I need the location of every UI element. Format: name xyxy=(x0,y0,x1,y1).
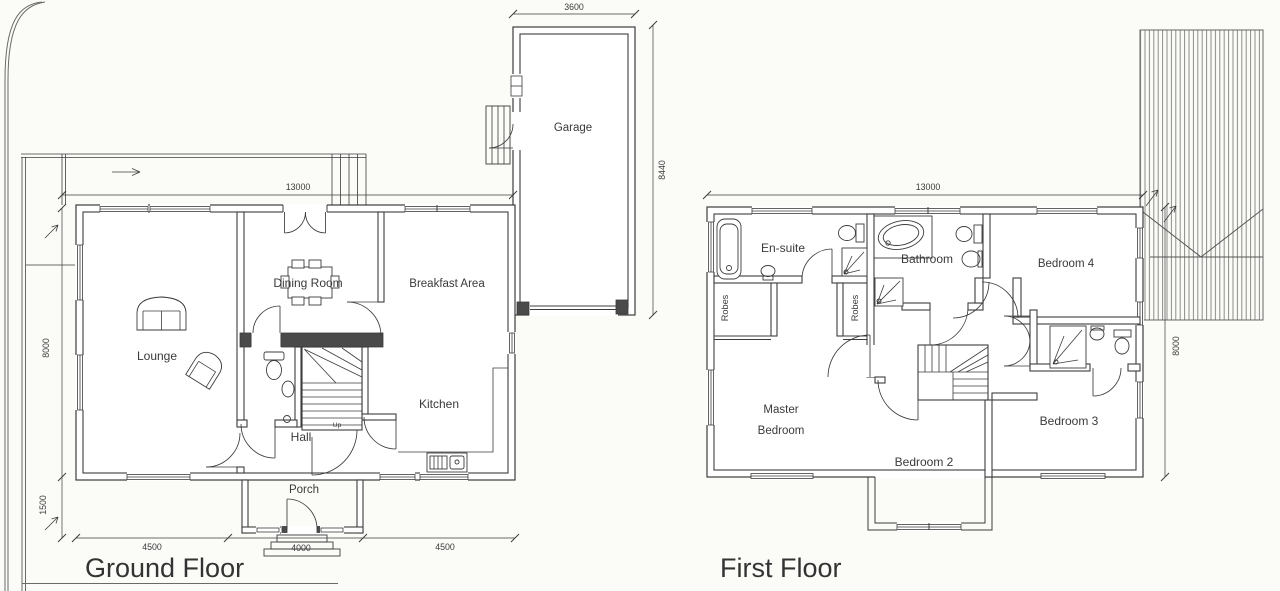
hall-label: Hall xyxy=(291,430,312,444)
ensuite-toilet-fixture xyxy=(839,224,865,242)
patio-strip xyxy=(21,154,366,205)
ground-floor-title: Ground Floor xyxy=(85,553,244,583)
garage-side-door xyxy=(489,124,513,148)
bedroom-4-label: Bedroom 4 xyxy=(1038,258,1095,270)
bathroom-label: Bathroom xyxy=(901,252,953,266)
dining-room-label: Dining Room xyxy=(273,276,342,290)
lounge-label: Lounge xyxy=(137,349,177,363)
dim-front-left: 4500 xyxy=(142,542,162,552)
ensuite-label: En-suite xyxy=(761,241,805,255)
garage-roof-hatch xyxy=(1140,30,1263,320)
dim-rear-offset: 1500 xyxy=(38,495,48,515)
ensuite-bath-fixture xyxy=(717,219,741,279)
dim-first-width: 13000 xyxy=(916,182,941,192)
garage-door-jamb xyxy=(517,302,529,315)
dim-first-depth: 8000 xyxy=(1171,336,1181,356)
dim-front-centre: 4000 xyxy=(291,543,311,553)
floor-plan-drawing: Up xyxy=(0,0,1280,591)
garage-label: Garage xyxy=(554,122,592,134)
robes-right-label: Robes xyxy=(850,294,860,321)
master-bedroom-label-line2: Bedroom xyxy=(758,425,805,437)
garage-side-steps xyxy=(486,106,510,164)
ground-floor-stairs: Up xyxy=(302,347,362,430)
bathroom-shower-fixture xyxy=(875,278,903,306)
front-door xyxy=(287,499,317,529)
garage-door-jamb xyxy=(616,300,628,314)
dim-garage-width: 3600 xyxy=(564,2,584,12)
stairs-up-label: Up xyxy=(333,422,342,429)
dim-front-right: 4500 xyxy=(435,542,455,552)
ensuite-shower-fixture xyxy=(842,248,867,276)
shower-room-shower-fixture xyxy=(1050,326,1086,368)
breakfast-area-label: Breakfast Area xyxy=(409,278,485,290)
bedroom-2-label: Bedroom 2 xyxy=(895,455,954,469)
dim-garage-depth: 8440 xyxy=(657,160,667,180)
bedroom-3-label: Bedroom 3 xyxy=(1040,414,1099,428)
floor-plan-sheet: Up xyxy=(0,0,1280,591)
first-floor-title: First Floor xyxy=(720,553,842,583)
first-floor-stairs xyxy=(918,345,988,400)
dim-ground-depth: 8000 xyxy=(41,338,51,358)
kitchen-label: Kitchen xyxy=(419,397,459,411)
direction-arrow-icon xyxy=(112,169,140,176)
kitchen-sink-fixture xyxy=(427,453,467,472)
master-bedroom-label-line1: Master xyxy=(763,404,798,416)
bathroom-toilet-fixture xyxy=(956,225,982,243)
robes-left-label: Robes xyxy=(720,294,730,321)
dim-ground-width: 13000 xyxy=(286,182,311,192)
porch-label: Porch xyxy=(289,484,319,496)
